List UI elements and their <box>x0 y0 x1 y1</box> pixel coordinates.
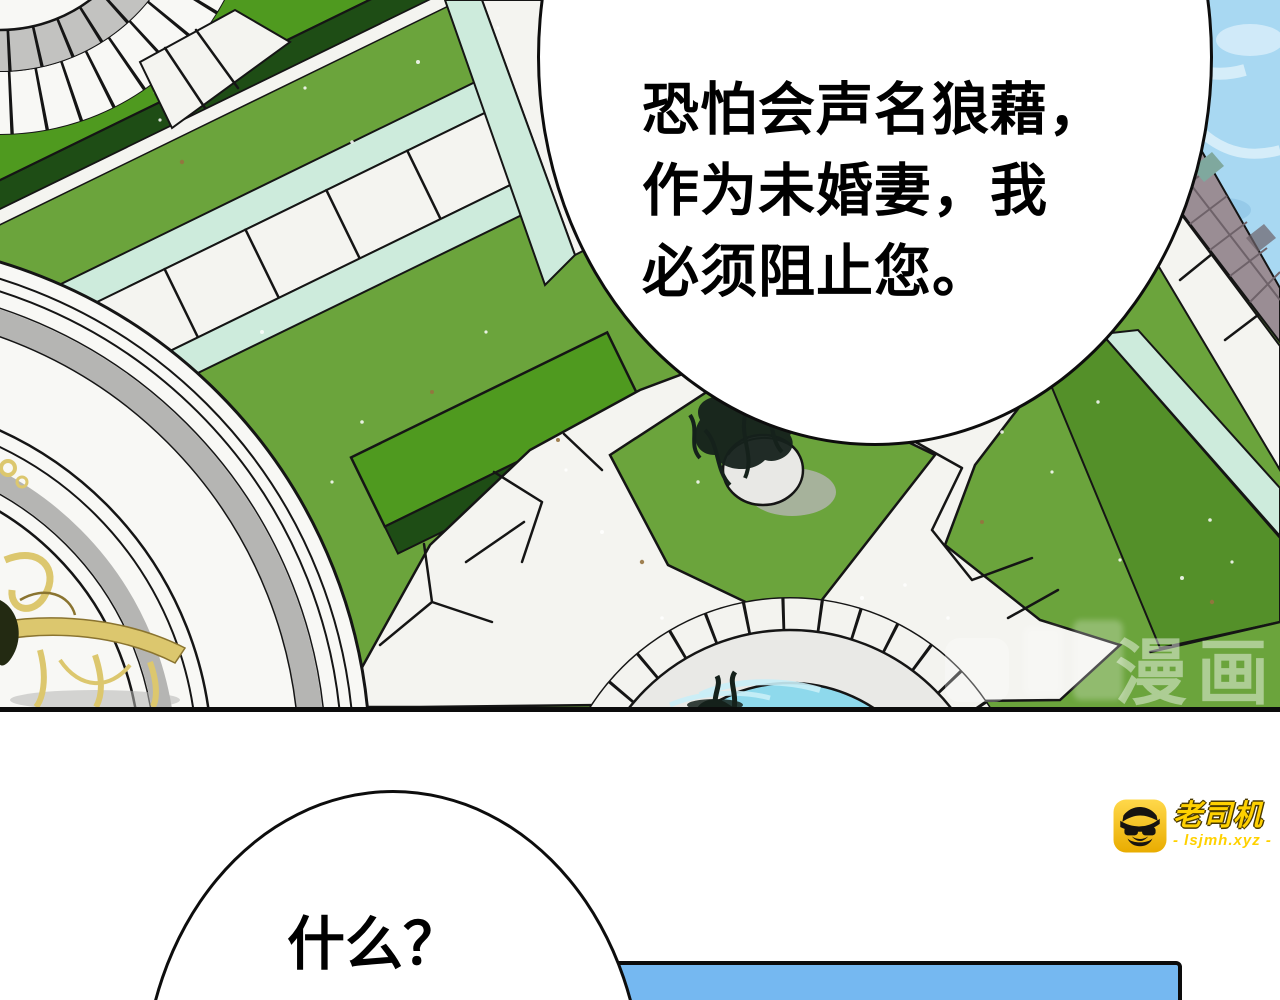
comic-page: 漫画 恐怕会声名狼藉， 作为未婚妻，我 必须阻止您。 什么？ 未婚妻？ <box>0 0 1280 1000</box>
logo-subtitle: - lsjmh.xyz - <box>1173 832 1272 849</box>
sunglasses-icon <box>1124 827 1138 835</box>
speech-line: 恐怕会声名狼藉， <box>642 70 1106 151</box>
garden-panel: 漫画 恐怕会声名狼藉， 作为未婚妻，我 必须阻止您。 <box>0 0 1280 712</box>
speech-line: 什么？ <box>287 897 461 981</box>
next-panel-blue <box>604 961 1182 1000</box>
site-logo: 老司机 - lsjmh.xyz - <box>1113 799 1272 853</box>
speech-bubble-top-text: 恐怕会声名狼藉， 作为未婚妻，我 必须阻止您。 <box>642 70 1106 313</box>
speech-line: 作为未婚妻，我 <box>642 151 1106 232</box>
driver-face-icon <box>1113 799 1167 853</box>
logo-title: 老司机 <box>1173 801 1272 831</box>
speech-line: 未婚妻？ <box>243 984 475 1000</box>
speech-line: 必须阻止您。 <box>642 232 1106 313</box>
